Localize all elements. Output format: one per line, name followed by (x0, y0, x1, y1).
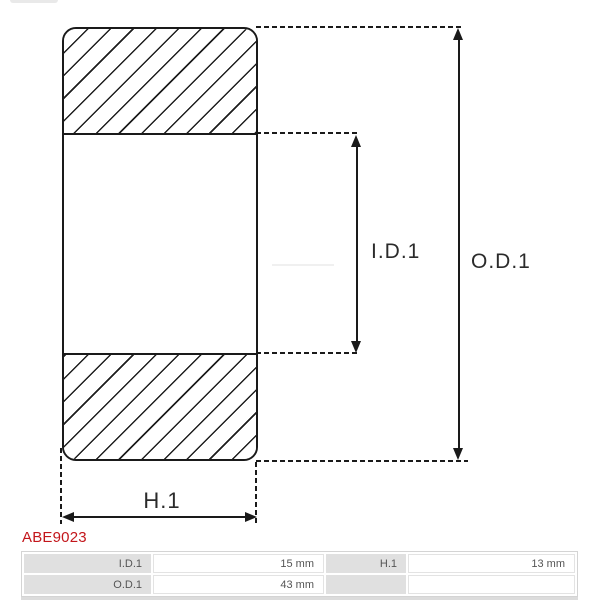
cropped-logo-artifact (10, 0, 58, 3)
extension-line-id-bottom (256, 352, 360, 354)
od-dimension-arrow (458, 38, 460, 450)
arrowhead-right-icon (245, 512, 257, 522)
h-dimension-arrow (72, 516, 247, 518)
spec-value-cell-empty (408, 575, 575, 594)
arrowhead-down-icon (351, 341, 361, 353)
spec-label-cell-h: H.1 (326, 554, 406, 573)
part-number: ABE9023 (22, 529, 87, 546)
watermark-line (272, 264, 334, 266)
arrowhead-down-icon (453, 448, 463, 460)
id-dimension-arrow (356, 145, 358, 342)
spec-label-cell-id: I.D.1 (24, 554, 151, 573)
spec-label-cell-od: O.D.1 (24, 575, 151, 594)
spec-table: I.D.1 15 mm H.1 13 mm O.D.1 43 mm (21, 551, 578, 597)
table-row: O.D.1 43 mm (24, 575, 575, 594)
bearing-diagram-canvas: I.D.1 O.D.1 H.1 ABE9023 I.D.1 15 mm H.1 … (0, 0, 600, 600)
outer-race-hatch-bottom (64, 353, 256, 459)
id-dimension-label: I.D.1 (371, 241, 420, 262)
spec-value-cell-h: 13 mm (408, 554, 575, 573)
table-row: I.D.1 15 mm H.1 13 mm (24, 554, 575, 573)
spec-label-cell-empty (326, 575, 406, 594)
od-dimension-label: O.D.1 (471, 251, 531, 272)
bearing-cross-section (62, 27, 258, 461)
h-dimension-label: H.1 (134, 490, 190, 512)
extension-line-id-top (256, 132, 360, 134)
outer-race-hatch-top (64, 29, 256, 135)
extension-line-od-top (256, 26, 464, 28)
bore-section (64, 135, 256, 353)
extension-line-od-bottom (256, 460, 468, 462)
spec-value-cell-od: 43 mm (153, 575, 324, 594)
spec-value-cell-id: 15 mm (153, 554, 324, 573)
